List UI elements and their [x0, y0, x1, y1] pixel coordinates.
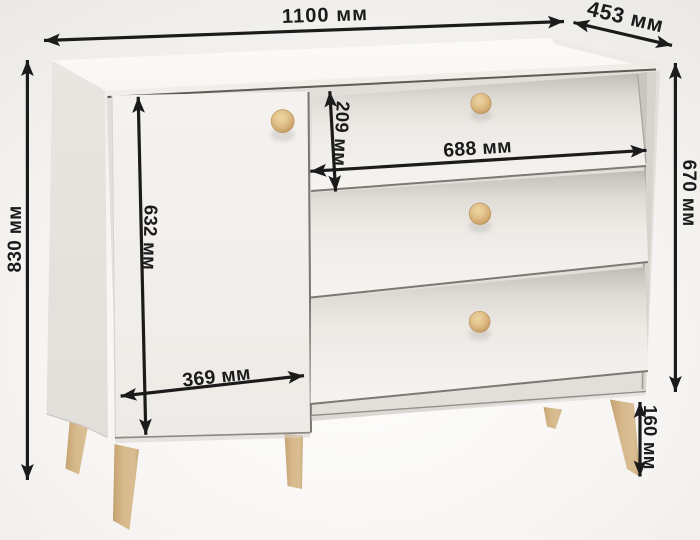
svg-text:160 мм: 160 мм [640, 405, 661, 470]
svg-text:670 мм: 670 мм [678, 160, 699, 227]
svg-text:830 мм: 830 мм [5, 206, 26, 273]
svg-text:209 мм: 209 мм [330, 101, 354, 167]
svg-text:688 мм: 688 мм [443, 135, 513, 162]
svg-text:1100 мм: 1100 мм [282, 3, 369, 28]
svg-text:632 мм: 632 мм [139, 205, 161, 271]
